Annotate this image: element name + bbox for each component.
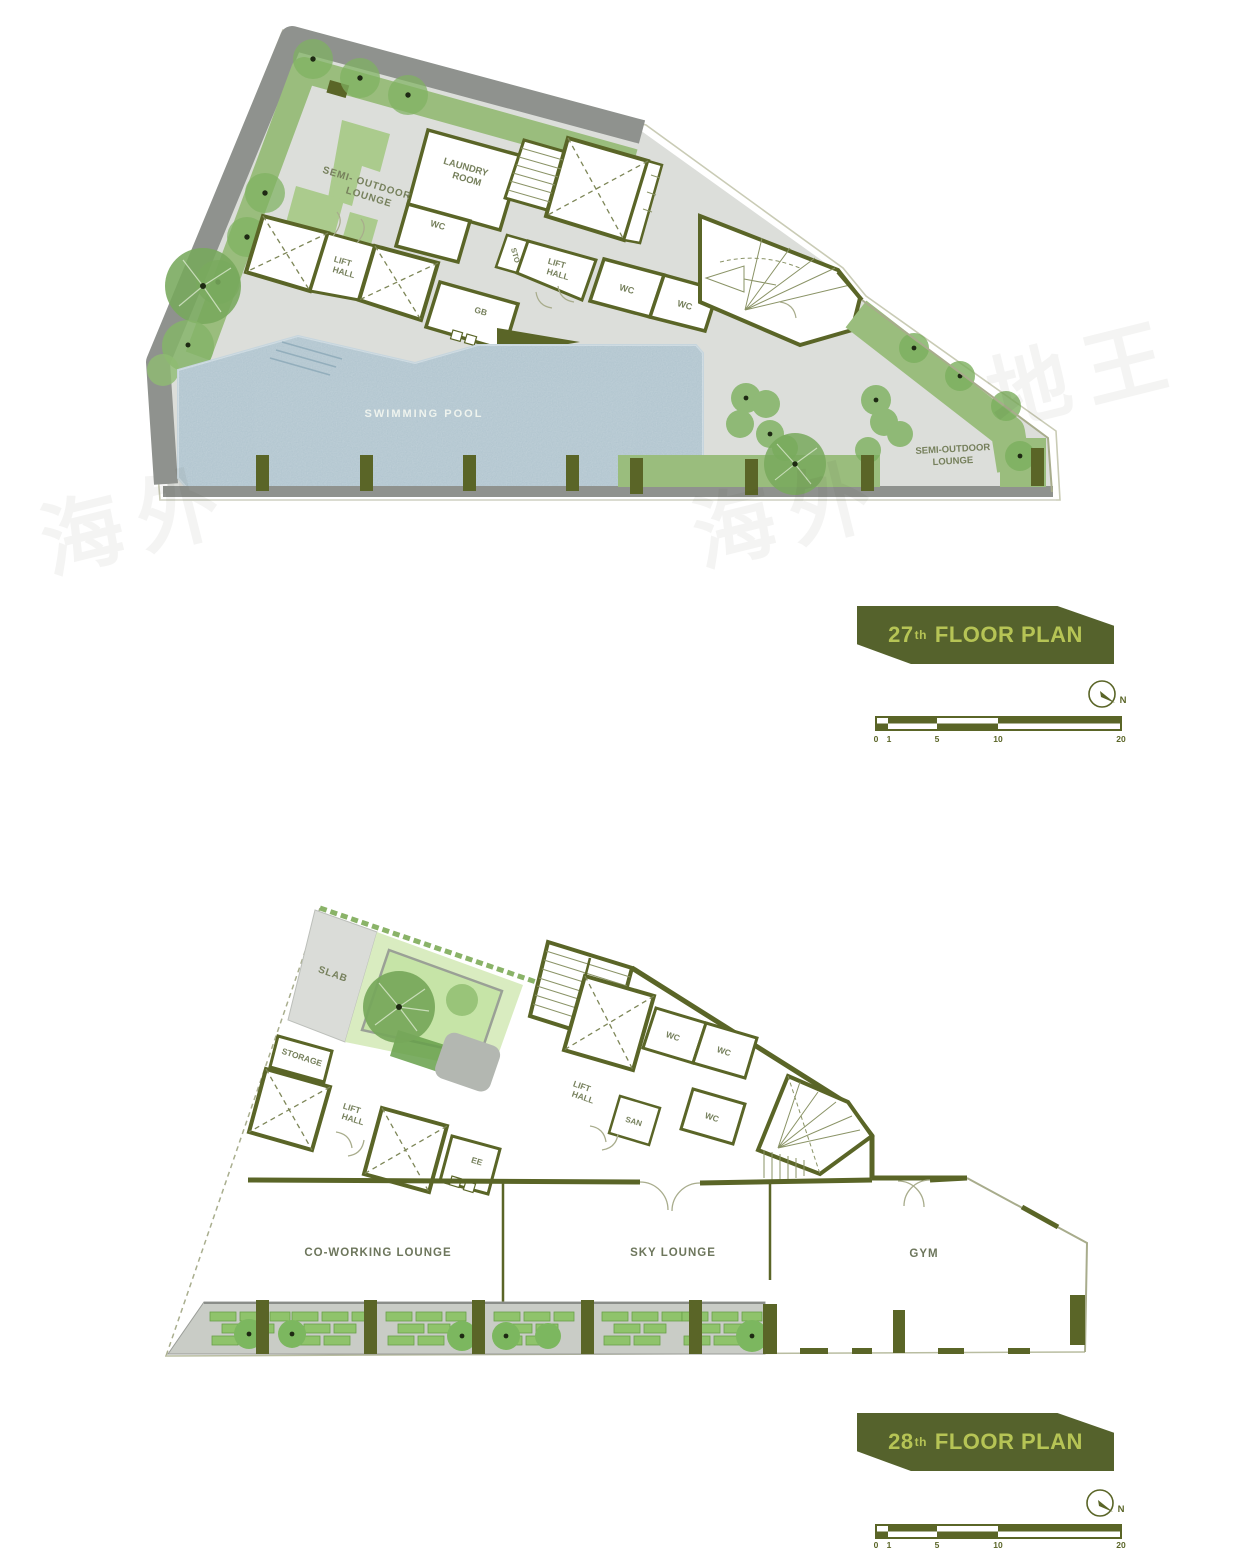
svg-text:N: N [1120, 695, 1127, 706]
title-banner-28th-floor: 28thFLOOR PLAN [857, 1413, 1114, 1471]
banner-text: FLOOR PLAN [935, 1429, 1083, 1455]
svg-text:5: 5 [935, 734, 940, 744]
svg-text:N: N [1118, 1504, 1125, 1515]
svg-text:20: 20 [1116, 1540, 1126, 1549]
svg-text:0: 0 [874, 1540, 879, 1549]
label-semi-outdoor-lounge-right: LOUNGE [932, 455, 973, 468]
label-gym: GYM [909, 1248, 938, 1260]
column [1070, 1295, 1085, 1345]
svg-text:0: 0 [874, 734, 879, 744]
scale-bar: 0 1 5 10 20 [874, 717, 1126, 744]
column [893, 1310, 905, 1353]
svg-text:1: 1 [887, 734, 892, 744]
scale-bar: 0 1 5 10 20 [874, 1525, 1126, 1549]
svg-text:5: 5 [935, 1540, 940, 1549]
banner-text: FLOOR PLAN [935, 622, 1083, 648]
north-compass-icon: N [1087, 1490, 1125, 1516]
tree [764, 433, 826, 495]
floor-number: 28 [888, 1429, 913, 1455]
label-coworking-lounge: CO-WORKING LOUNGE [304, 1247, 451, 1259]
floor-number: 27 [888, 622, 913, 648]
floor-plan-brochure-page: SEMI- OUTDOOR LOUNGE LAUNDRY ROOM WC STO… [0, 0, 1240, 1549]
label-sky-lounge: SKY LOUNGE [630, 1247, 716, 1259]
title-banner-27th-floor: 27thFLOOR PLAN [857, 606, 1114, 664]
svg-text:20: 20 [1116, 734, 1126, 744]
svg-text:10: 10 [993, 1540, 1003, 1549]
svg-text:1: 1 [887, 1540, 892, 1549]
north-compass-icon: N [1089, 681, 1127, 707]
deck-edge-band [163, 486, 1053, 497]
label-swimming-pool: SWIMMING POOL [365, 408, 484, 420]
svg-text:10: 10 [993, 734, 1003, 744]
floor-plans-drawing: SEMI- OUTDOOR LOUNGE LAUNDRY ROOM WC STO… [0, 0, 1240, 1549]
